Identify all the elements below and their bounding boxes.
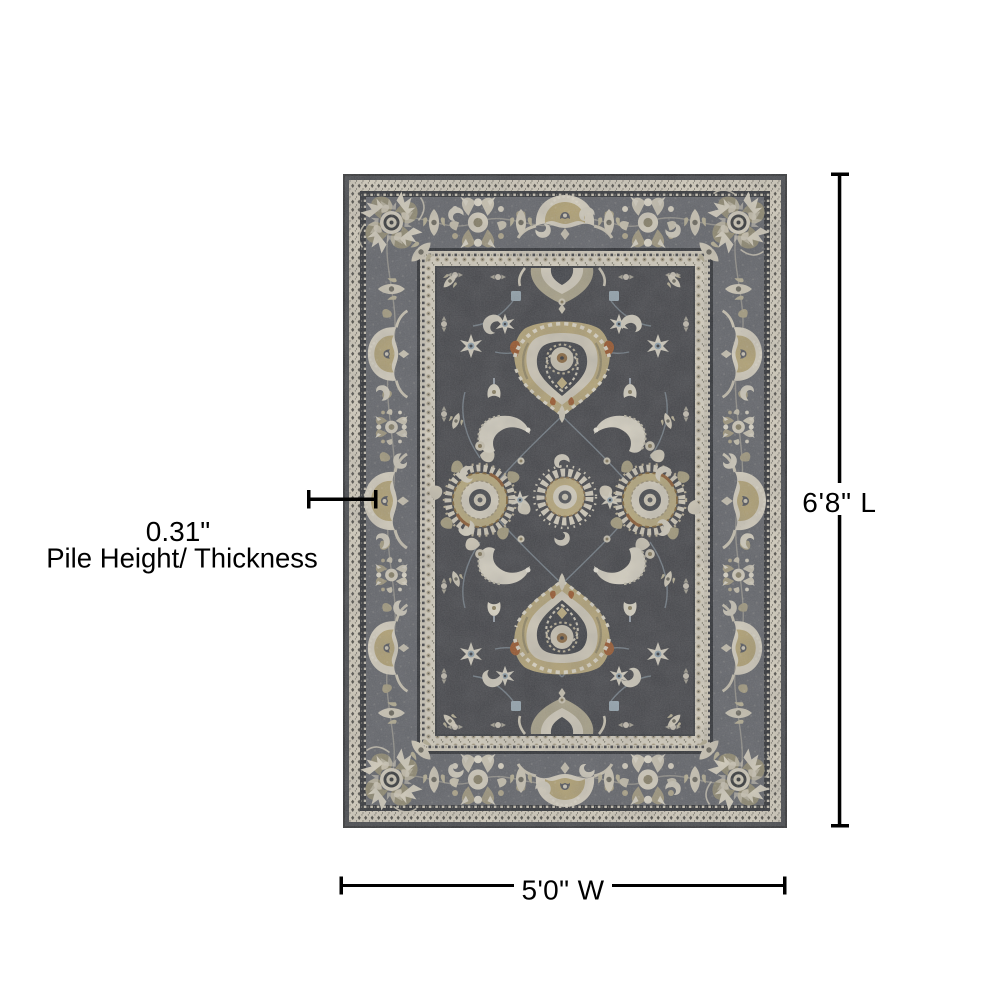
svg-text:Pile Height/ Thickness: Pile Height/ Thickness xyxy=(46,543,318,574)
svg-text:6'8" L: 6'8" L xyxy=(802,487,877,518)
svg-text:5'0" W: 5'0" W xyxy=(521,875,604,906)
